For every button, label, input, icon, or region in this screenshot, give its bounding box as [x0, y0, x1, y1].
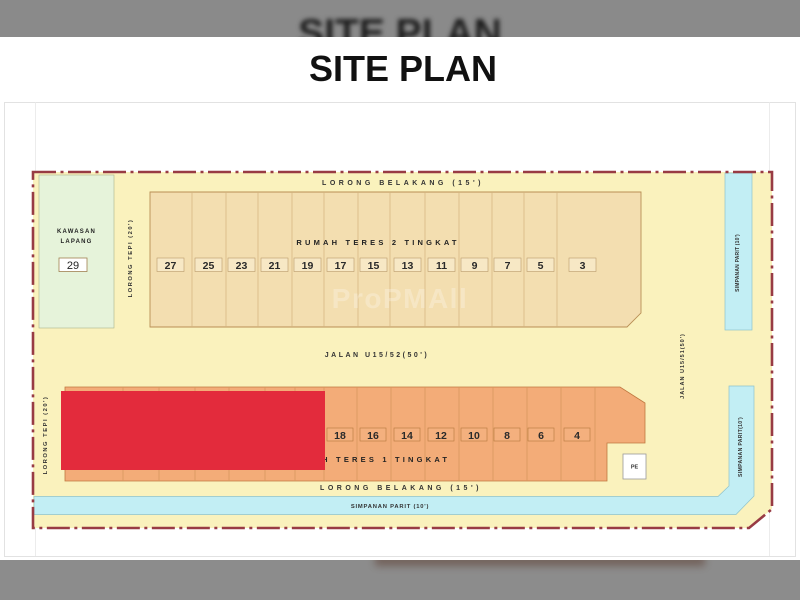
svg-text:LORONG TEPI (20'): LORONG TEPI (20')	[43, 396, 49, 475]
svg-text:17: 17	[335, 260, 347, 272]
svg-text:16: 16	[367, 430, 379, 442]
svg-text:12: 12	[435, 430, 447, 442]
svg-text:LORONG TEPI (20'): LORONG TEPI (20')	[128, 219, 134, 298]
svg-text:13: 13	[402, 260, 414, 272]
svg-text:ProPMAll: ProPMAll	[332, 283, 468, 314]
svg-text:25: 25	[203, 260, 215, 272]
svg-text:10: 10	[468, 430, 480, 442]
svg-text:11: 11	[436, 260, 447, 272]
svg-text:19: 19	[302, 260, 314, 272]
svg-text:14: 14	[401, 430, 413, 442]
svg-text:15: 15	[368, 260, 380, 272]
svg-text:8: 8	[504, 430, 510, 442]
svg-text:23: 23	[236, 260, 248, 272]
svg-text:3: 3	[580, 260, 586, 272]
svg-text:LAPANG: LAPANG	[60, 239, 92, 245]
svg-text:PE: PE	[631, 465, 639, 471]
svg-text:SIMPANAN PARIT (10'): SIMPANAN PARIT (10')	[735, 234, 741, 292]
svg-text:KAWASAN: KAWASAN	[57, 229, 96, 235]
svg-text:LORONG BELAKANG (15'): LORONG BELAKANG (15')	[322, 180, 484, 187]
svg-text:4: 4	[574, 430, 580, 442]
svg-text:9: 9	[472, 260, 478, 272]
svg-text:6: 6	[538, 430, 544, 442]
svg-text:JALAN U15/51(50'): JALAN U15/51(50')	[680, 333, 686, 399]
svg-text:18: 18	[334, 430, 346, 442]
svg-text:29: 29	[67, 260, 79, 272]
svg-text:27: 27	[165, 260, 177, 272]
svg-text:SIMPANAN PARIT (10'): SIMPANAN PARIT (10')	[351, 504, 429, 510]
svg-text:7: 7	[505, 260, 511, 272]
svg-text:SIMPANAN PARIT(10'): SIMPANAN PARIT(10')	[738, 417, 744, 477]
svg-text:JALAN U15/52(50'): JALAN U15/52(50')	[325, 352, 429, 359]
svg-text:RUMAH TERES 2 TINGKAT: RUMAH TERES 2 TINGKAT	[296, 238, 459, 247]
svg-text:5: 5	[538, 260, 544, 272]
svg-text:21: 21	[269, 260, 281, 272]
svg-text:LORONG BELAKANG (15'): LORONG BELAKANG (15')	[320, 485, 482, 492]
